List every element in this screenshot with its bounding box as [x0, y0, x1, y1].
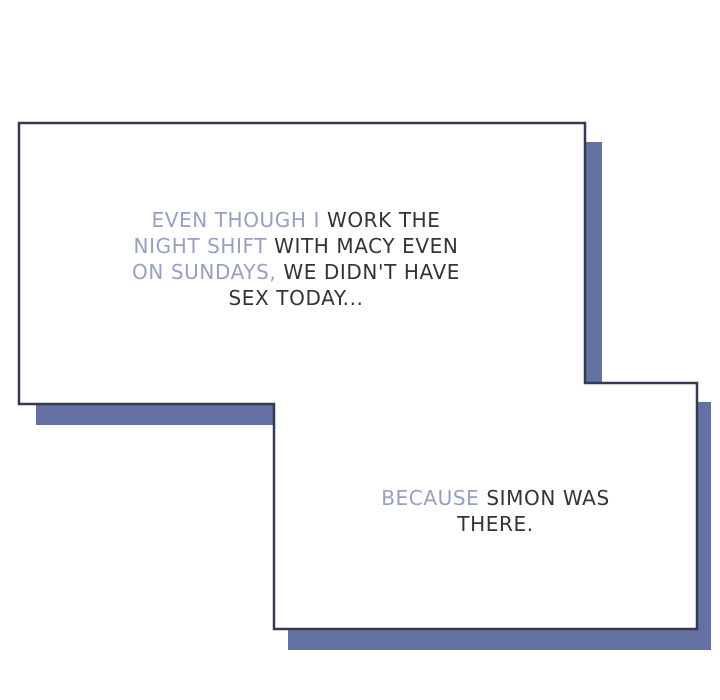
comic-page: EVEN THOUGH I WORK THE NIGHT SHIFT WITH … [0, 0, 720, 700]
panel-artwork [0, 0, 720, 700]
